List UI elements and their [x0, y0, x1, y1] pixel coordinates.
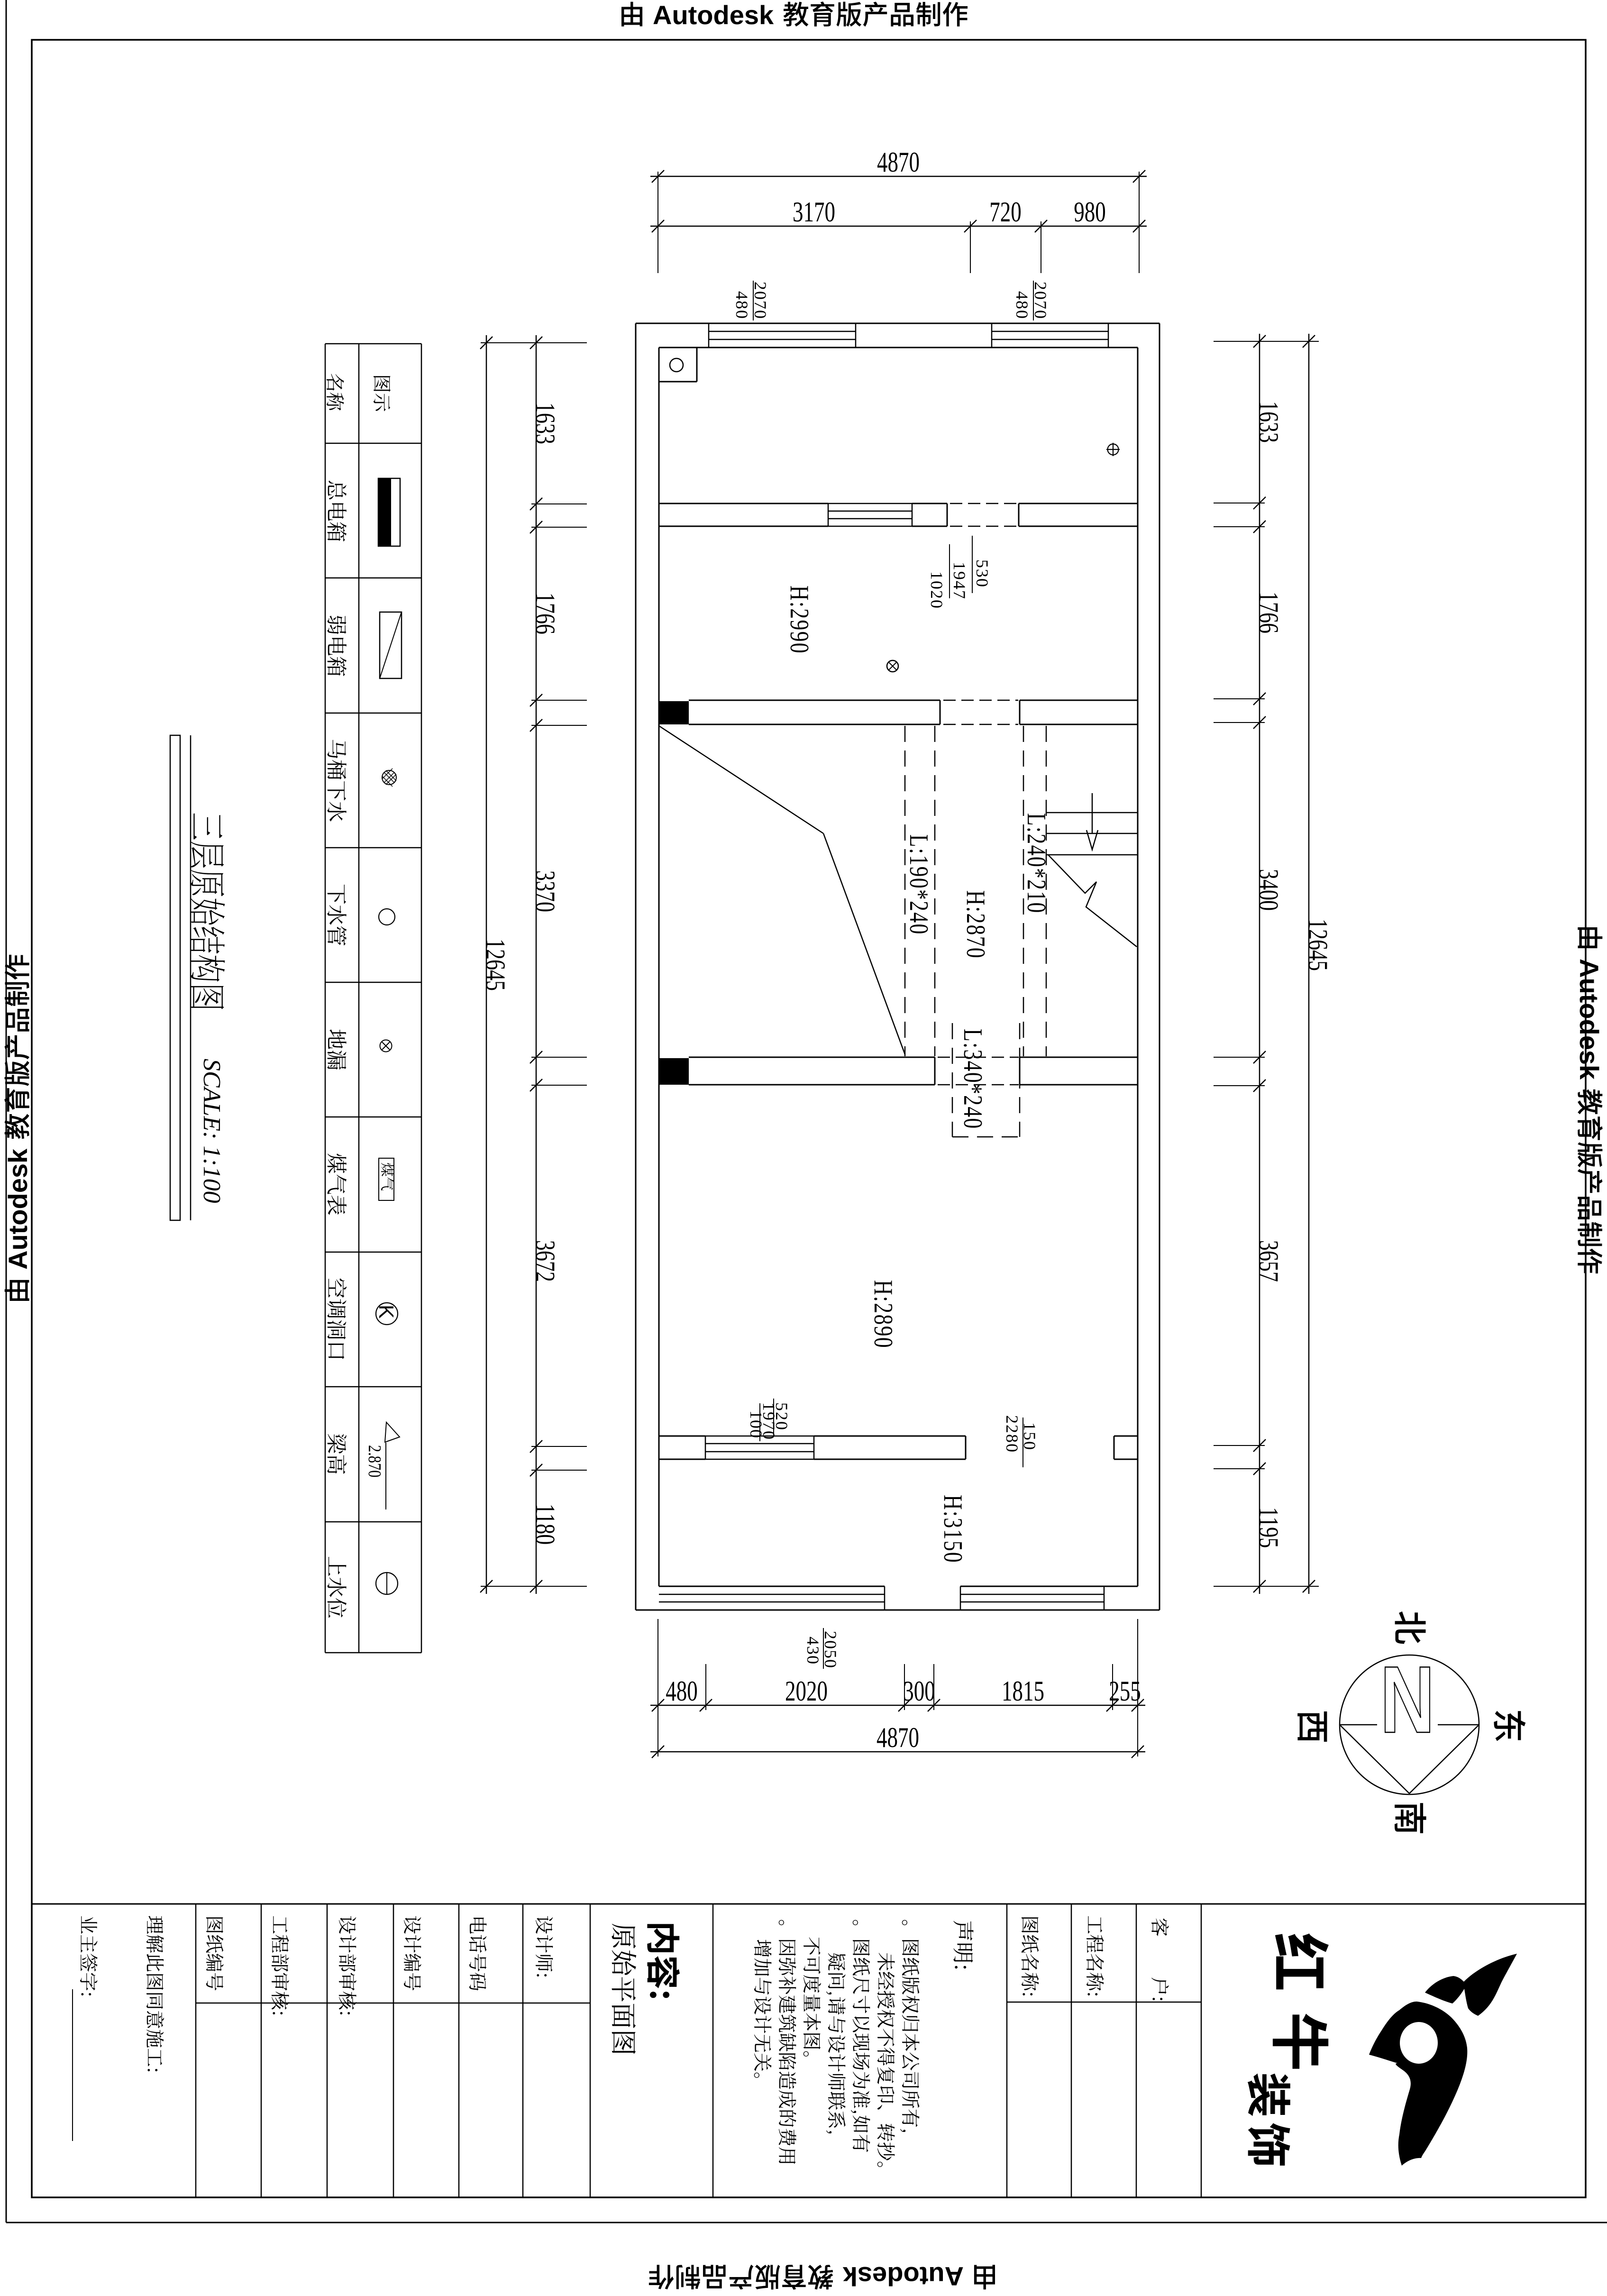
svg-text:4870: 4870 — [877, 147, 920, 178]
svg-text:255: 255 — [1109, 1676, 1141, 1707]
svg-text:H:2890: H:2890 — [869, 1280, 898, 1349]
svg-text:H:2990: H:2990 — [785, 585, 814, 654]
svg-text:4870: 4870 — [877, 1722, 919, 1754]
svg-text:1020: 1020 — [927, 571, 946, 609]
svg-text:H:3150: H:3150 — [939, 1495, 968, 1564]
svg-text:3170: 3170 — [793, 197, 835, 228]
svg-text:L:340*240: L:340*240 — [959, 1029, 988, 1130]
svg-text:980: 980 — [1074, 197, 1105, 228]
svg-text:L:190*240: L:190*240 — [904, 834, 934, 935]
svg-text:480: 480 — [732, 291, 751, 320]
svg-text:2020: 2020 — [785, 1676, 828, 1707]
svg-text:3370: 3370 — [530, 870, 560, 912]
svg-text:2.870: 2.870 — [365, 1445, 384, 1477]
svg-text:12645: 12645 — [480, 939, 510, 991]
svg-text:480: 480 — [1013, 291, 1032, 320]
svg-text:100: 100 — [747, 1410, 766, 1439]
svg-text:1947: 1947 — [950, 562, 969, 600]
svg-text:3672: 3672 — [530, 1240, 560, 1282]
svg-text:N: N — [1380, 1647, 1435, 1753]
svg-text:1815: 1815 — [1002, 1676, 1044, 1707]
svg-text:1633: 1633 — [1253, 401, 1283, 443]
svg-text:1180: 1180 — [530, 1504, 560, 1545]
svg-text:12645: 12645 — [1302, 919, 1333, 971]
svg-text:1633: 1633 — [530, 402, 560, 444]
svg-text:H:2870: H:2870 — [961, 890, 991, 959]
svg-text:K: K — [374, 1305, 398, 1318]
svg-text:1195: 1195 — [1253, 1507, 1283, 1548]
svg-text:L:240*210: L:240*210 — [1022, 813, 1051, 914]
svg-text:3657: 3657 — [1253, 1240, 1283, 1282]
svg-text:530: 530 — [973, 559, 992, 588]
svg-text:3400: 3400 — [1253, 869, 1283, 911]
svg-text:1766: 1766 — [1253, 592, 1283, 633]
svg-text:430: 430 — [803, 1637, 822, 1665]
svg-text:SCALE: 1:100: SCALE: 1:100 — [198, 1059, 225, 1203]
svg-text:480: 480 — [666, 1676, 697, 1707]
svg-text:1766: 1766 — [530, 593, 560, 634]
svg-text:720: 720 — [989, 197, 1021, 228]
svg-text:2280: 2280 — [1003, 1415, 1022, 1453]
svg-text:300: 300 — [903, 1676, 935, 1707]
